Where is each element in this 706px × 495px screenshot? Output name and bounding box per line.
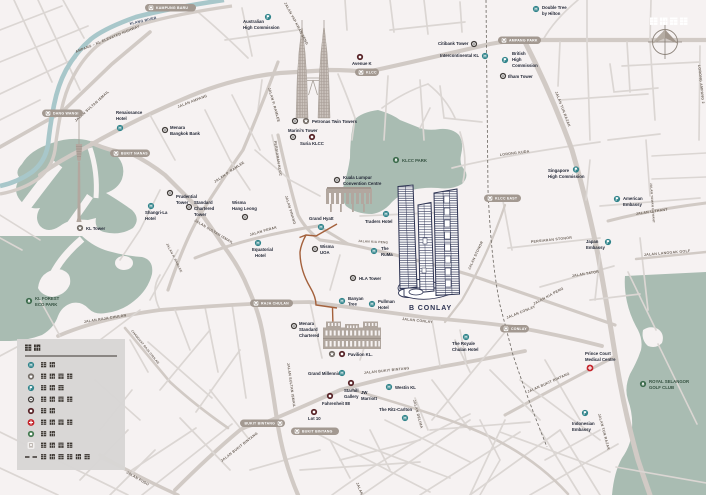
- svg-text:Tree: Tree: [348, 302, 357, 307]
- svg-text:Chartered: Chartered: [194, 206, 215, 211]
- svg-text:Prudential: Prudential: [176, 194, 197, 199]
- svg-text:Wisma: Wisma: [232, 200, 246, 205]
- svg-text:Banyan: Banyan: [348, 296, 364, 301]
- svg-text:Tower: Tower: [176, 200, 189, 205]
- svg-text:Standard: Standard: [299, 327, 318, 332]
- svg-text:The Ritz-Carlton: The Ritz-Carlton: [379, 407, 413, 412]
- svg-text:BUKIT NANAS: BUKIT NANAS: [121, 152, 148, 156]
- svg-text:Indonesian: Indonesian: [572, 421, 595, 426]
- svg-text:DANG WANGI: DANG WANGI: [53, 112, 79, 116]
- svg-text:GOLF CLUB: GOLF CLUB: [649, 385, 674, 390]
- svg-text:Shangri-La: Shangri-La: [145, 210, 168, 215]
- svg-text:Menara: Menara: [170, 125, 186, 130]
- svg-text:Ilham Tower: Ilham Tower: [508, 74, 533, 79]
- svg-text:Intercontinental KL: Intercontinental KL: [440, 53, 480, 58]
- svg-text:RuMa: RuMa: [381, 252, 393, 257]
- svg-text:Marriott: Marriott: [361, 396, 378, 401]
- svg-text:Double Tree: Double Tree: [542, 5, 567, 10]
- svg-text:Fahrenheit 88: Fahrenheit 88: [322, 401, 351, 406]
- svg-text:Pullman: Pullman: [378, 299, 395, 304]
- svg-text:KLCC EAST: KLCC EAST: [495, 197, 518, 201]
- svg-text:Gallery: Gallery: [344, 394, 359, 399]
- svg-text:Avenue K: Avenue K: [352, 61, 373, 66]
- svg-text:Starhill: Starhill: [344, 388, 359, 393]
- svg-text:Tower: Tower: [194, 212, 207, 217]
- svg-text:Grand Hyatt: Grand Hyatt: [309, 216, 334, 221]
- svg-text:BUKIT BINTANG: BUKIT BINTANG: [302, 430, 333, 434]
- svg-text:British: British: [512, 51, 526, 56]
- svg-text:Convention Centre: Convention Centre: [343, 181, 382, 186]
- svg-text:Hang Leong: Hang Leong: [232, 206, 257, 211]
- svg-text:Singapore: Singapore: [548, 168, 570, 173]
- svg-text:HLA Tower: HLA Tower: [359, 276, 382, 281]
- svg-text:ECO PARK: ECO PARK: [35, 302, 58, 307]
- svg-text:Prince Court: Prince Court: [585, 351, 611, 356]
- svg-text:Pavilion KL.: Pavilion KL.: [348, 352, 373, 357]
- svg-text:by Hilton: by Hilton: [542, 11, 561, 16]
- svg-text:Chulan Hotel: Chulan Hotel: [452, 347, 479, 352]
- svg-text:Hotel: Hotel: [145, 216, 156, 221]
- svg-text:Menara: Menara: [299, 321, 315, 326]
- svg-text:Petronas Twin Towers: Petronas Twin Towers: [312, 119, 358, 124]
- svg-text:High Commission: High Commission: [243, 25, 280, 30]
- svg-text:Suria KLCC: Suria KLCC: [300, 141, 324, 146]
- svg-text:CONLAY: CONLAY: [511, 327, 527, 331]
- svg-text:Medical Centre: Medical Centre: [585, 357, 616, 362]
- svg-text:High Commission: High Commission: [548, 174, 585, 179]
- svg-text:UOA: UOA: [320, 250, 330, 255]
- svg-text:RAJA CHULAN: RAJA CHULAN: [261, 302, 289, 306]
- svg-text:Wisma: Wisma: [320, 244, 334, 249]
- svg-text:Hotel: Hotel: [378, 305, 389, 310]
- svg-text:Embassy: Embassy: [586, 245, 605, 250]
- svg-text:Japan: Japan: [586, 239, 599, 244]
- svg-text:KL FOREST: KL FOREST: [35, 296, 60, 301]
- svg-text:KLCC: KLCC: [366, 71, 377, 75]
- svg-text:Westin KL: Westin KL: [395, 385, 416, 390]
- svg-text:Commission: Commission: [512, 63, 538, 68]
- svg-text:Embassy: Embassy: [572, 427, 591, 432]
- svg-text:The Royale: The Royale: [452, 341, 476, 346]
- svg-text:Equatorial: Equatorial: [252, 247, 273, 252]
- svg-text:KAMPUNG BARU: KAMPUNG BARU: [156, 6, 188, 10]
- svg-text:AMPANG PARK: AMPANG PARK: [509, 39, 538, 43]
- svg-text:The: The: [381, 246, 389, 251]
- svg-text:KLCC PARK: KLCC PARK: [402, 158, 428, 163]
- svg-text:Chartered: Chartered: [299, 333, 320, 338]
- svg-text:JW: JW: [361, 390, 368, 395]
- svg-text:Lot 10: Lot 10: [308, 416, 321, 421]
- svg-text:Citibank Tower: Citibank Tower: [438, 41, 469, 46]
- svg-text:KL Tower: KL Tower: [86, 226, 106, 231]
- svg-text:Renaissance: Renaissance: [116, 110, 143, 115]
- svg-text:Hotel: Hotel: [116, 116, 127, 121]
- svg-text:Marini's Tower: Marini's Tower: [288, 128, 318, 133]
- svg-text:B CONLAY: B CONLAY: [409, 305, 452, 312]
- svg-text:Hotel: Hotel: [255, 253, 266, 258]
- svg-text:BUKIT BINTANG: BUKIT BINTANG: [245, 422, 276, 426]
- svg-text:Traders Hotel: Traders Hotel: [365, 219, 392, 224]
- svg-text:Standard: Standard: [194, 200, 213, 205]
- svg-text:Australian: Australian: [243, 19, 264, 24]
- svg-text:Embassy: Embassy: [623, 202, 642, 207]
- svg-text:American: American: [623, 196, 643, 201]
- svg-text:ROYAL SELANGOR: ROYAL SELANGOR: [649, 379, 690, 384]
- svg-text:Kuala Lumpur: Kuala Lumpur: [343, 175, 372, 180]
- svg-text:Bangkok Bank: Bangkok Bank: [170, 131, 200, 136]
- svg-text:High: High: [512, 57, 522, 62]
